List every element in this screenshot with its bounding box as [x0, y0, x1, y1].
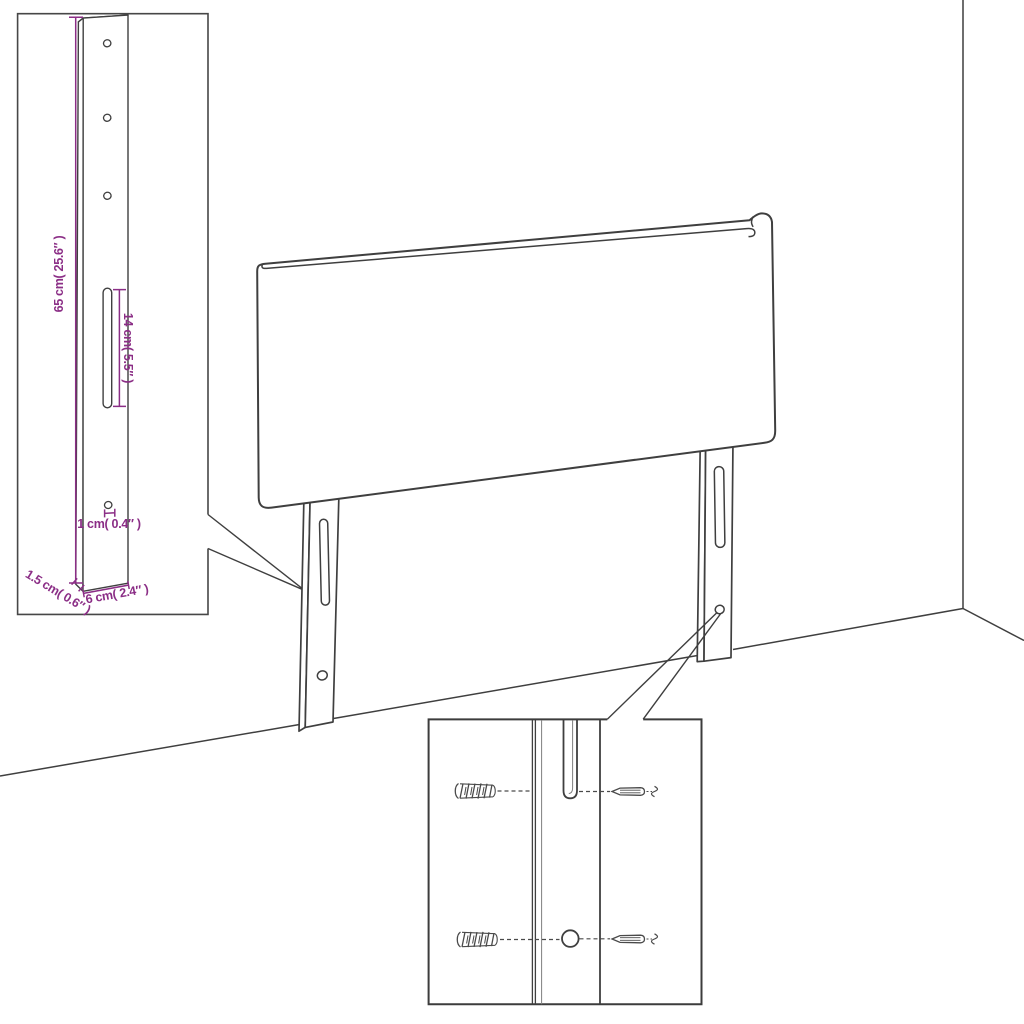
floor-line-left: [0, 609, 963, 777]
left-leg-slot: [319, 519, 329, 605]
dimension-label-bracket-height: 65 cm( 25.6″ ): [52, 236, 66, 313]
detail-leg-left-edge: [532, 720, 535, 1004]
right-leg-slot: [714, 467, 725, 548]
dimension-label-slot-length: 14 cm( 5.5″ ): [121, 313, 135, 383]
panel-outline: [257, 213, 775, 507]
screw-inset-border: [429, 719, 702, 1004]
floor-line-right: [963, 609, 1024, 641]
wall-plug-top: [455, 783, 495, 798]
detail-slot-inner-line: [569, 720, 573, 794]
dimension-label-hole-diameter: 1 cm( 0.4″ ): [77, 517, 141, 531]
screw-detail-inset: [429, 719, 702, 1004]
detail-hole: [562, 930, 579, 947]
bracket-inset-callout-lines: [208, 515, 302, 590]
headboard-panel: [257, 213, 775, 507]
diagram-canvas: 65 cm( 25.6″ ) 14 cm( 5.5″ ) 1 cm( 0.4″ …: [0, 0, 1024, 1024]
left-leg: [299, 480, 339, 731]
screw-bottom: [612, 934, 658, 944]
alignment-dashed-lines: [498, 791, 611, 940]
screw-top: [612, 786, 658, 796]
headboard-diagram: [0, 0, 1024, 1024]
detail-slot: [564, 720, 578, 798]
bracket-front-face: [83, 15, 128, 591]
bracket-side-face: [76, 18, 83, 591]
wall-plug-bottom: [457, 932, 497, 947]
